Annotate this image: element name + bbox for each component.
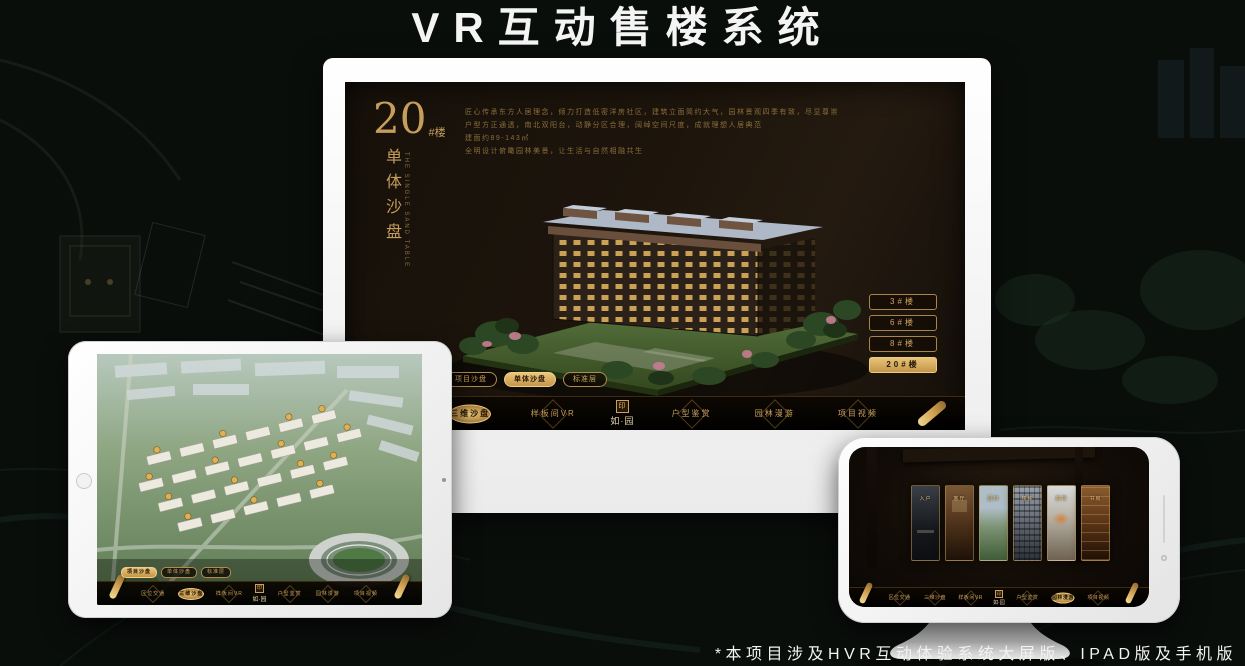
brand-logo: 印 如·园 bbox=[610, 400, 634, 427]
vr-panel-label: 客厅 bbox=[946, 495, 973, 502]
pavilion-post-decor bbox=[867, 447, 877, 567]
vr-panel-label: 入户 bbox=[912, 495, 939, 502]
menu-item-video[interactable]: 项目视频 bbox=[351, 590, 381, 597]
menu-item-video[interactable]: 项目视频 bbox=[1085, 594, 1111, 601]
building-number: 20 bbox=[373, 98, 426, 140]
building-button-3[interactable]: 3#楼 bbox=[869, 294, 937, 310]
building-button-8[interactable]: 8#楼 bbox=[869, 336, 937, 352]
menu-item-showroom-vr[interactable]: 样板间VR bbox=[527, 408, 579, 419]
brand-logo-text: 如·园 bbox=[610, 414, 634, 427]
phone-device: 入户 客厅 园林 楼栋 庭院 书房 区位 bbox=[838, 437, 1180, 623]
tablet-menu-bar: 区位交通 三维沙盘 样板间VR 印 如·园 户型鉴赏 园林漫游 项目视频 bbox=[97, 581, 422, 605]
vr-panel-label: 庭院 bbox=[1048, 495, 1075, 502]
menu-item-garden-tour[interactable]: 园林漫游 bbox=[313, 590, 343, 597]
menu-item-showroom-vr[interactable]: 样板间VR bbox=[214, 590, 244, 597]
vr-panel-entry[interactable]: 入户 bbox=[911, 485, 940, 561]
menu-item-garden-tour[interactable]: 园林漫游 bbox=[749, 408, 801, 419]
tablet-home-button bbox=[76, 473, 92, 489]
vr-panel-garden[interactable]: 园林 bbox=[979, 485, 1008, 561]
vr-panel-study[interactable]: 书房 bbox=[1081, 485, 1110, 561]
vr-panel-label: 楼栋 bbox=[1014, 495, 1041, 502]
tablet-tab-standard-floor[interactable]: 标准层 bbox=[201, 567, 231, 578]
scroll-handle-icon[interactable] bbox=[916, 399, 948, 428]
building-subtitle: 单体沙盘 bbox=[379, 148, 403, 248]
tablet-device: 项目沙盘 单体沙盘 标准层 区位交通 三维沙盘 样板间VR 印 如·园 户型鉴赏… bbox=[68, 341, 452, 618]
vr-panel-label: 书房 bbox=[1082, 495, 1109, 502]
phone-menu-bar: 区位交通 三维沙盘 样板间VR 印 如·园 户型鉴赏 园林漫游 项目视频 bbox=[849, 587, 1149, 607]
menu-item-floorplan[interactable]: 户型鉴赏 bbox=[666, 408, 718, 419]
tablet-view-tabs: 项目沙盘 单体沙盘 标准层 bbox=[121, 567, 231, 578]
menu-item-location[interactable]: 区位交通 bbox=[138, 590, 168, 597]
menu-item-floorplan[interactable]: 户型鉴赏 bbox=[1014, 594, 1040, 601]
vr-scene-panels: 入户 客厅 园林 楼栋 庭院 书房 bbox=[911, 485, 1110, 561]
building-button-6[interactable]: 6#楼 bbox=[869, 315, 937, 331]
description-line: 户型方正通透，南北双阳台，动静分区合理，阔绰空间尺度，成就理想人居典范 bbox=[465, 119, 837, 132]
menu-item-garden-tour[interactable]: 园林漫游 bbox=[1050, 594, 1076, 601]
tablet-tab-single-sandbox[interactable]: 单体沙盘 bbox=[161, 567, 197, 578]
phone-screen: 入户 客厅 园林 楼栋 庭院 书房 区位 bbox=[849, 447, 1149, 607]
page: VR互动售楼系统 20#楼 单体沙盘THE SINGLE SAND TABLE … bbox=[0, 0, 1245, 666]
vr-panel-courtyard[interactable]: 庭院 bbox=[1047, 485, 1076, 561]
tablet-tab-project-sandbox[interactable]: 项目沙盘 bbox=[121, 567, 157, 578]
vr-panel-label: 园林 bbox=[980, 495, 1007, 502]
building-button-20[interactable]: 20#楼 bbox=[869, 357, 937, 373]
tab-project-sandbox[interactable]: 项目沙盘 bbox=[445, 372, 497, 387]
tablet-screen: 项目沙盘 单体沙盘 标准层 区位交通 三维沙盘 样板间VR 印 如·园 户型鉴赏… bbox=[97, 354, 422, 605]
footnote-text: *本项目涉及HVR互动体验系统大屏版、IPAD版及手机版 bbox=[715, 640, 1237, 664]
brand-seal-icon: 印 bbox=[995, 590, 1003, 598]
tab-standard-floor[interactable]: 标准层 bbox=[563, 372, 607, 387]
vr-panel-building[interactable]: 楼栋 bbox=[1013, 485, 1042, 561]
menu-item-floorplan[interactable]: 户型鉴赏 bbox=[275, 590, 305, 597]
pavilion-beam-decor bbox=[903, 447, 1095, 463]
tablet-camera-icon bbox=[442, 478, 446, 482]
building-selector: 3#楼 6#楼 8#楼 20#楼 bbox=[869, 294, 937, 373]
vr-panel-livingroom[interactable]: 客厅 bbox=[945, 485, 974, 561]
menu-item-3d-sandbox[interactable]: 三维沙盘 bbox=[922, 594, 948, 601]
brand-seal-icon: 印 bbox=[616, 400, 629, 413]
menu-item-showroom-vr[interactable]: 样板间VR bbox=[958, 594, 984, 601]
menu-item-location[interactable]: 区位交通 bbox=[887, 594, 913, 601]
brand-seal-icon: 印 bbox=[255, 584, 264, 593]
menu-item-video[interactable]: 项目视频 bbox=[832, 408, 884, 419]
building-3d-model[interactable] bbox=[403, 138, 883, 406]
phone-camera-icon bbox=[1161, 555, 1167, 561]
page-title: VR互动售楼系统 bbox=[0, 0, 1245, 56]
scroll-handle-icon[interactable] bbox=[859, 581, 874, 603]
description-line: 匠心传承东方人居理念，倾力打造低密洋房社区，建筑立面简约大气，园林景观四季有致，… bbox=[465, 106, 837, 119]
brand-logo-text: 如·园 bbox=[993, 599, 1005, 606]
view-tabs: 项目沙盘 单体沙盘 标准层 bbox=[445, 372, 607, 387]
scroll-handle-icon[interactable] bbox=[1125, 581, 1140, 603]
tab-single-sandbox[interactable]: 单体沙盘 bbox=[504, 372, 556, 387]
menu-item-3d-sandbox[interactable]: 三维沙盘 bbox=[176, 590, 206, 597]
brand-logo-text: 如·园 bbox=[253, 594, 267, 603]
phone-speaker-slot bbox=[1163, 495, 1165, 543]
brand-logo: 印 如·园 bbox=[993, 590, 1005, 606]
brand-logo: 印 如·园 bbox=[253, 584, 267, 603]
